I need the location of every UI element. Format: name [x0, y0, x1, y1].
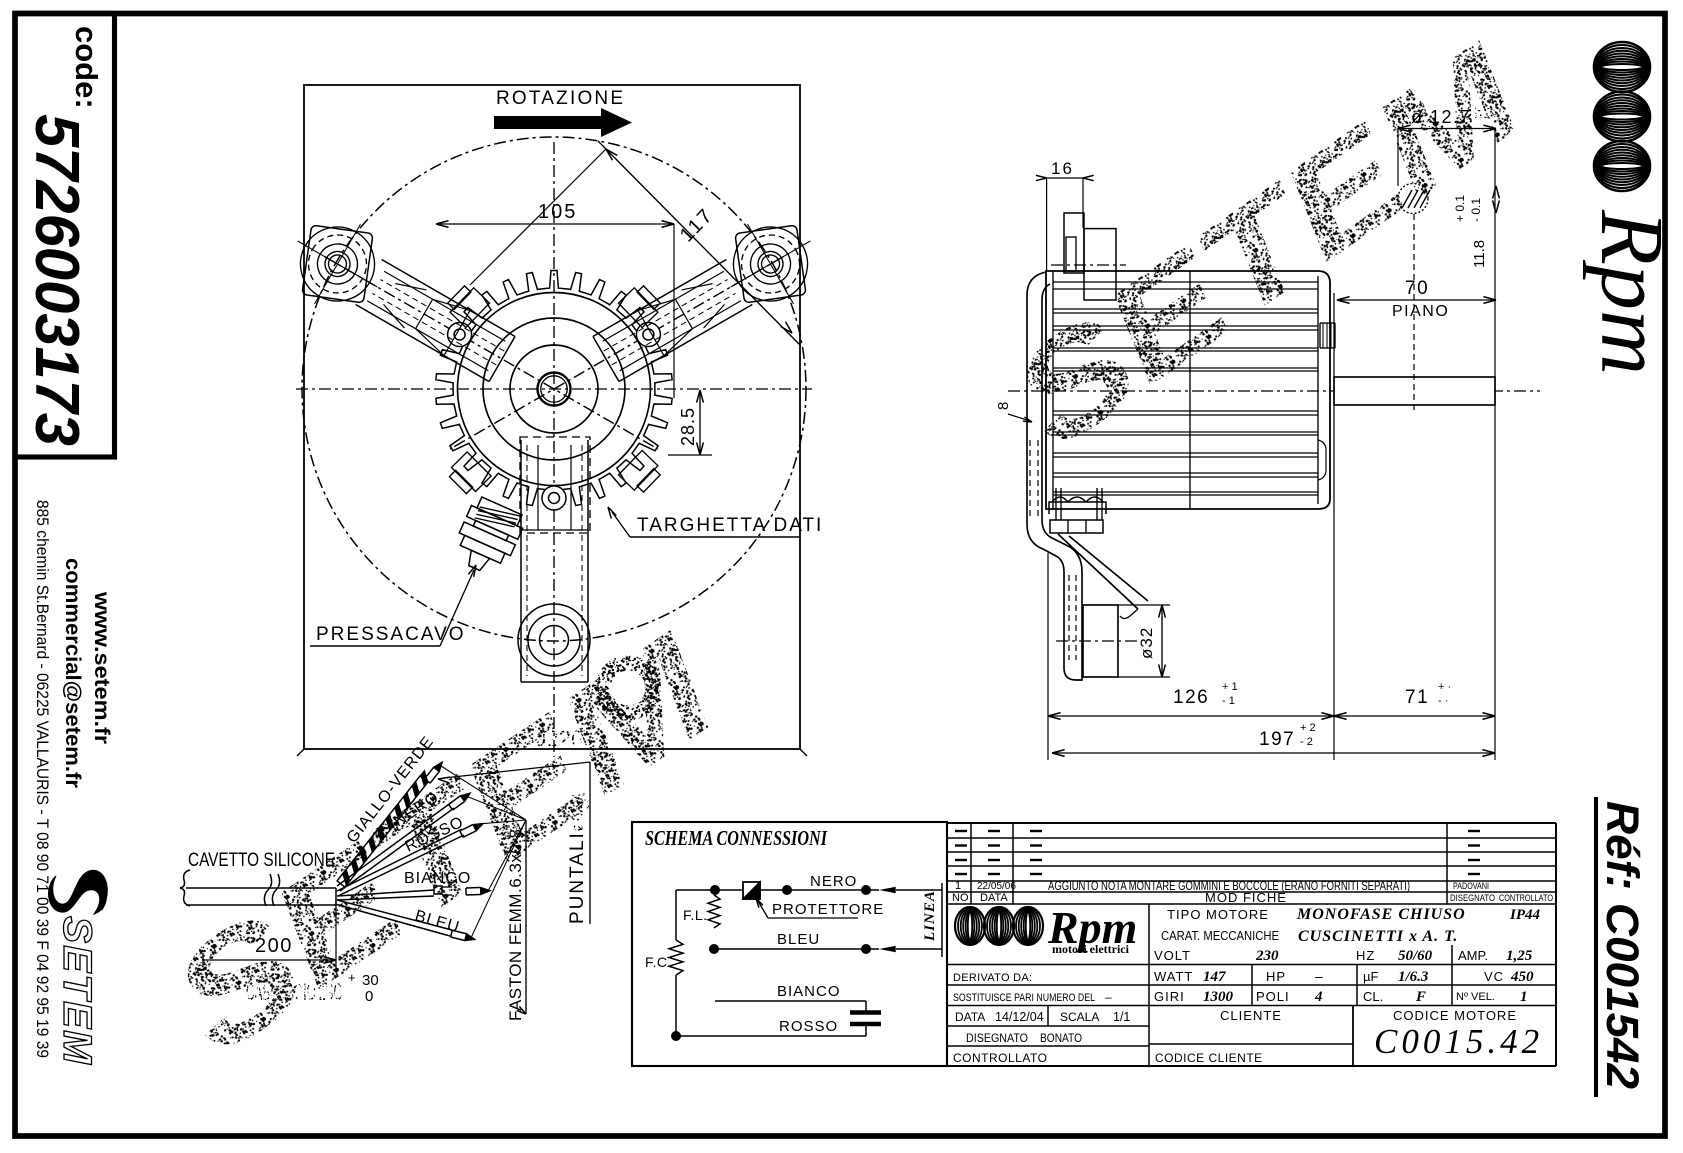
svg-text:F.L.: F.L.	[683, 907, 708, 923]
svg-text:SOSTITUISCE PARI NUMERO DEL: SOSTITUISCE PARI NUMERO DEL	[953, 992, 1095, 1004]
svg-text:Nº VEL.: Nº VEL.	[1456, 991, 1495, 1003]
svg-text:DISEGNATO: DISEGNATO	[1450, 893, 1495, 904]
svg-text:LINEA: LINEA	[922, 890, 938, 942]
svg-text:16: 16	[1051, 159, 1074, 178]
svg-text:1: 1	[1520, 989, 1528, 1005]
svg-text:–: –	[1315, 968, 1323, 984]
svg-text:1,25: 1,25	[1506, 948, 1533, 964]
svg-text:VC: VC	[1484, 969, 1504, 984]
svg-text:5726003173: 5726003173	[22, 114, 91, 446]
svg-text:11.8: 11.8	[1471, 240, 1488, 268]
svg-text:+ 1: + 1	[1222, 681, 1238, 693]
svg-text:- 1: - 1	[1222, 695, 1235, 707]
svg-text:ø220: ø220	[533, 726, 583, 751]
svg-text:CARAT. MECCANICHE: CARAT. MECCANICHE	[1161, 928, 1279, 943]
svg-text:TIPO MOTORE: TIPO MOTORE	[1167, 907, 1269, 922]
svg-text:71: 71	[1405, 687, 1429, 708]
svg-text:1/1: 1/1	[1113, 1010, 1130, 1024]
svg-text:- 2: - 2	[1300, 736, 1313, 748]
svg-text:126: 126	[1173, 687, 1209, 708]
svg-text:code:: code:	[69, 26, 104, 109]
svg-text:MONOFASE CHIUSO: MONOFASE CHIUSO	[1296, 906, 1466, 923]
svg-text:AMP.: AMP.	[1458, 948, 1488, 963]
svg-text:CLIENTE: CLIENTE	[1220, 1008, 1282, 1023]
svg-text:NO: NO	[952, 892, 969, 904]
svg-text:VOLT: VOLT	[1154, 948, 1191, 963]
svg-text:DISEGNATO: DISEGNATO	[966, 1031, 1028, 1045]
svg-text:PROTETTORE: PROTETTORE	[772, 901, 884, 918]
svg-text:GIRI: GIRI	[1154, 989, 1185, 1004]
svg-text:105: 105	[538, 201, 577, 223]
svg-text:PIANO: PIANO	[1392, 303, 1449, 320]
svg-text:- ·: - ·	[1438, 695, 1448, 707]
svg-text:28.5: 28.5	[678, 407, 698, 446]
svg-text:230: 230	[1255, 948, 1279, 964]
svg-text:TARGHETTA DATI: TARGHETTA DATI	[637, 515, 823, 536]
svg-text:4: 4	[1314, 989, 1323, 1005]
svg-text:CONTROLLATO: CONTROLLATO	[1499, 893, 1553, 904]
svg-text:+ 2: + 2	[1300, 722, 1316, 734]
svg-text:ROTAZIONE: ROTAZIONE	[496, 88, 625, 109]
svg-text:8: 8	[995, 402, 1012, 410]
svg-text:885 chemin St.Bernard - 0622: 885 chemin St.Bernard - 06225 VALLAURIS …	[33, 500, 51, 1058]
svg-text:IP44: IP44	[1509, 907, 1541, 923]
svg-text:SCHEMA CONNESSIONI: SCHEMA CONNESSIONI	[645, 826, 828, 850]
svg-text:F: F	[1415, 989, 1426, 1005]
svg-text:- 0.1: - 0.1	[1469, 198, 1483, 222]
svg-text:motori elettrici: motori elettrici	[1052, 942, 1130, 956]
svg-text:1300: 1300	[1203, 989, 1234, 1005]
svg-text:ø32: ø32	[1137, 627, 1156, 659]
svg-text:SCALA: SCALA	[1060, 1010, 1099, 1024]
svg-text:PADOVANI: PADOVANI	[1453, 881, 1489, 891]
svg-text:ROSSO: ROSSO	[779, 1018, 838, 1035]
svg-text:1: 1	[955, 880, 961, 892]
svg-text:C0015.42: C0015.42	[1374, 1022, 1543, 1061]
svg-text:197: 197	[1259, 729, 1295, 750]
svg-text:1/6.3: 1/6.3	[1398, 969, 1429, 985]
svg-text:147: 147	[1203, 969, 1226, 985]
svg-text:+ ·: + ·	[1438, 681, 1451, 693]
svg-text:BONATO: BONATO	[1040, 1031, 1082, 1045]
svg-text:CODICE MOTORE: CODICE MOTORE	[1393, 1008, 1517, 1023]
svg-text:14/12/04: 14/12/04	[995, 1010, 1044, 1024]
svg-text:DATA: DATA	[955, 1010, 985, 1024]
svg-text:commercial@setem.fr: commercial@setem.fr	[61, 558, 84, 788]
svg-text:F.C.: F.C.	[645, 954, 672, 970]
svg-text:PRESSACAVO: PRESSACAVO	[316, 624, 466, 645]
svg-text:CONTROLLATO: CONTROLLATO	[953, 1051, 1047, 1065]
svg-text:CODICE CLIENTE: CODICE CLIENTE	[1155, 1051, 1263, 1065]
svg-text:HP: HP	[1266, 969, 1286, 984]
svg-text:NERO: NERO	[810, 873, 857, 890]
svg-text:BIANCO: BIANCO	[777, 983, 841, 1000]
svg-text:DERIVATO DA:: DERIVATO DA:	[953, 972, 1032, 984]
svg-text:70: 70	[1405, 278, 1429, 299]
svg-text:µF: µF	[1363, 969, 1378, 984]
svg-text:–: –	[1105, 990, 1112, 1004]
svg-text:DATA: DATA	[980, 892, 1008, 904]
svg-text:50/60: 50/60	[1398, 948, 1433, 964]
svg-text:450: 450	[1510, 969, 1534, 985]
svg-text:SETEM: SETEM	[55, 916, 99, 1066]
svg-text:CUSCINETTI x A. T.: CUSCINETTI x A. T.	[1298, 928, 1458, 945]
svg-text:HZ: HZ	[1356, 948, 1375, 963]
svg-text:BLEU: BLEU	[777, 931, 820, 948]
svg-text:22/05/06: 22/05/06	[977, 881, 1016, 892]
svg-text:Réf: C001542: Réf: C001542	[1597, 801, 1648, 1089]
svg-text:CL.: CL.	[1363, 989, 1383, 1004]
svg-text:WATT: WATT	[1154, 969, 1193, 984]
svg-text:POLI: POLI	[1256, 989, 1290, 1004]
svg-text:MOD FICHE: MOD FICHE	[1205, 890, 1287, 905]
svg-text:www.setem.fr: www.setem.fr	[90, 591, 113, 744]
svg-text:Rpm: Rpm	[1582, 209, 1681, 375]
